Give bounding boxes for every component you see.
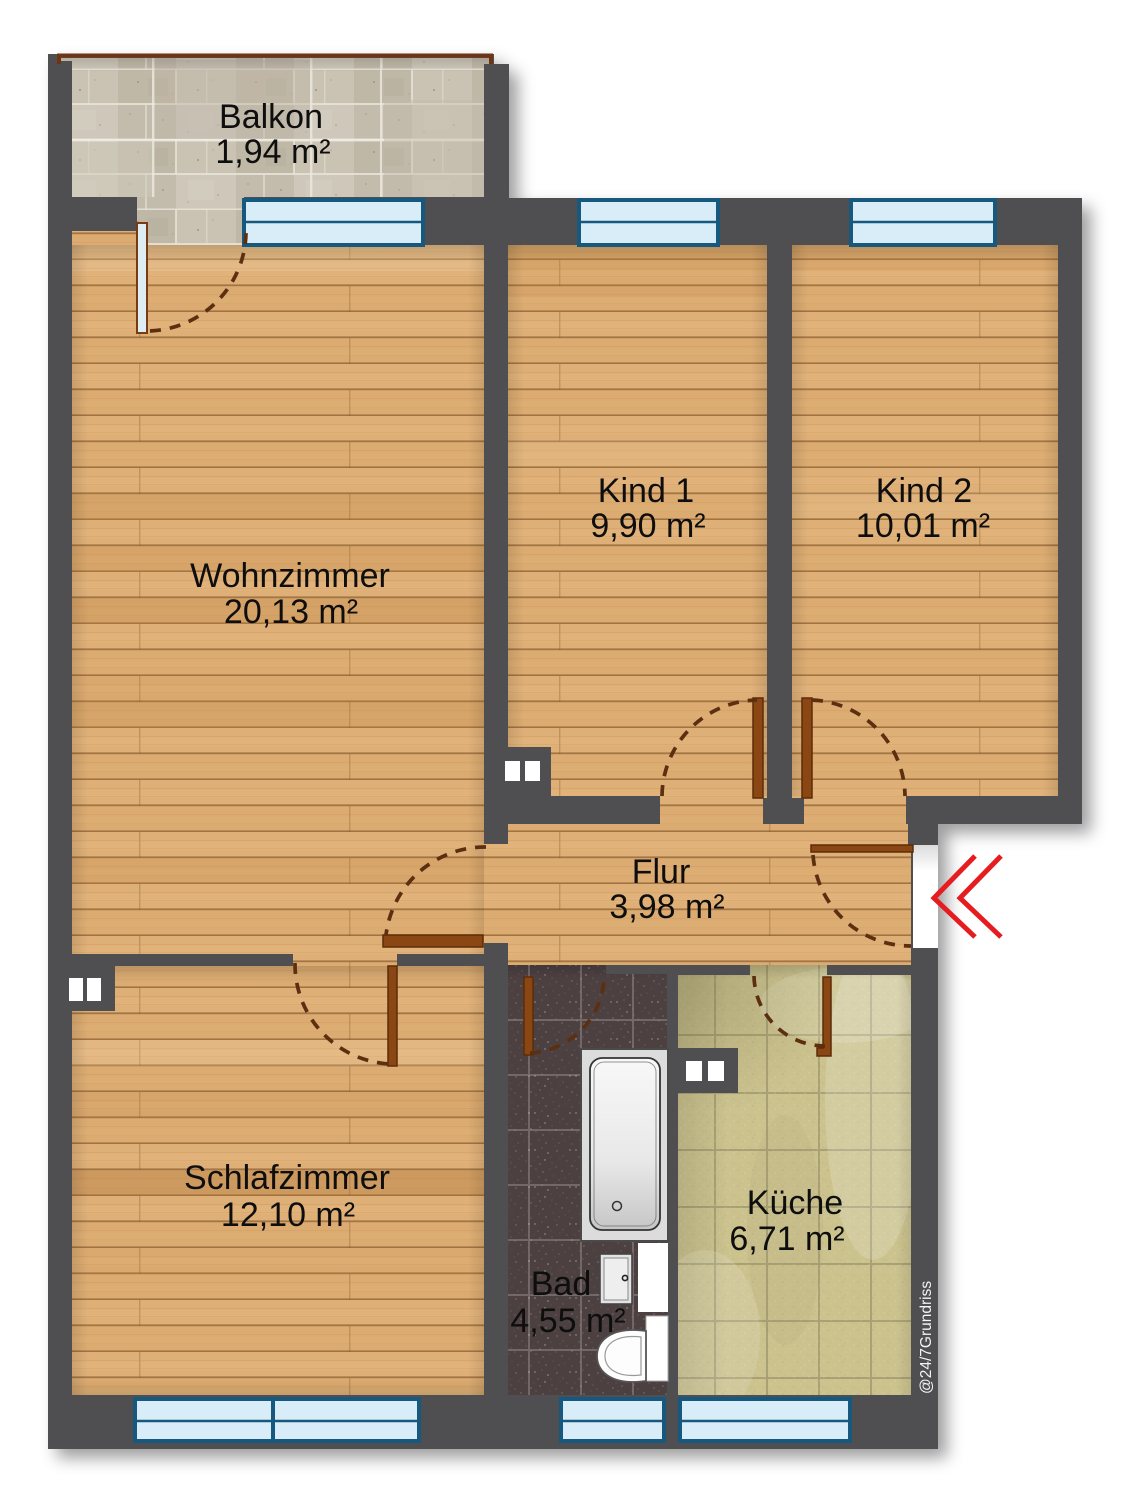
svg-text:Flur: Flur xyxy=(632,853,691,891)
svg-text:1,94 m²: 1,94 m² xyxy=(215,133,330,171)
svg-text:Schlafzimmer: Schlafzimmer xyxy=(184,1159,390,1197)
svg-text:12,10 m²: 12,10 m² xyxy=(221,1196,355,1234)
svg-text:@24/7Grundriss: @24/7Grundriss xyxy=(918,1281,935,1394)
svg-text:Kind 1: Kind 1 xyxy=(598,472,694,510)
svg-text:6,71 m²: 6,71 m² xyxy=(729,1220,844,1258)
svg-text:20,13 m²: 20,13 m² xyxy=(224,593,358,631)
svg-text:9,90 m²: 9,90 m² xyxy=(590,507,705,545)
svg-text:10,01 m²: 10,01 m² xyxy=(856,507,990,545)
svg-text:Wohnzimmer: Wohnzimmer xyxy=(190,557,390,595)
svg-text:Küche: Küche xyxy=(747,1184,843,1222)
svg-text:3,98 m²: 3,98 m² xyxy=(609,888,724,926)
svg-text:4,55 m²: 4,55 m² xyxy=(510,1302,625,1340)
svg-text:Kind 2: Kind 2 xyxy=(876,472,972,510)
svg-text:Balkon: Balkon xyxy=(219,98,323,136)
svg-text:Bad: Bad xyxy=(531,1265,592,1303)
